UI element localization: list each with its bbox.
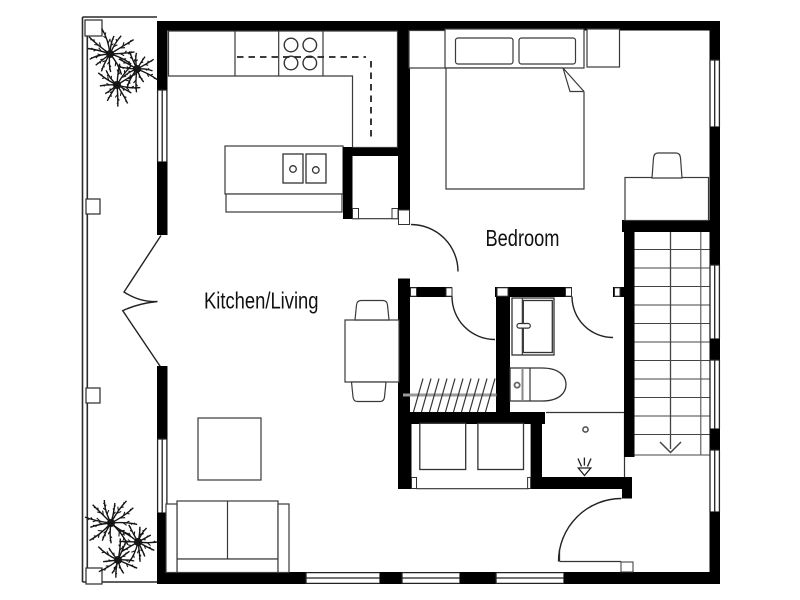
svg-text:Kitchen/Living: Kitchen/Living bbox=[204, 288, 319, 314]
svg-text:Bedroom: Bedroom bbox=[486, 225, 560, 251]
